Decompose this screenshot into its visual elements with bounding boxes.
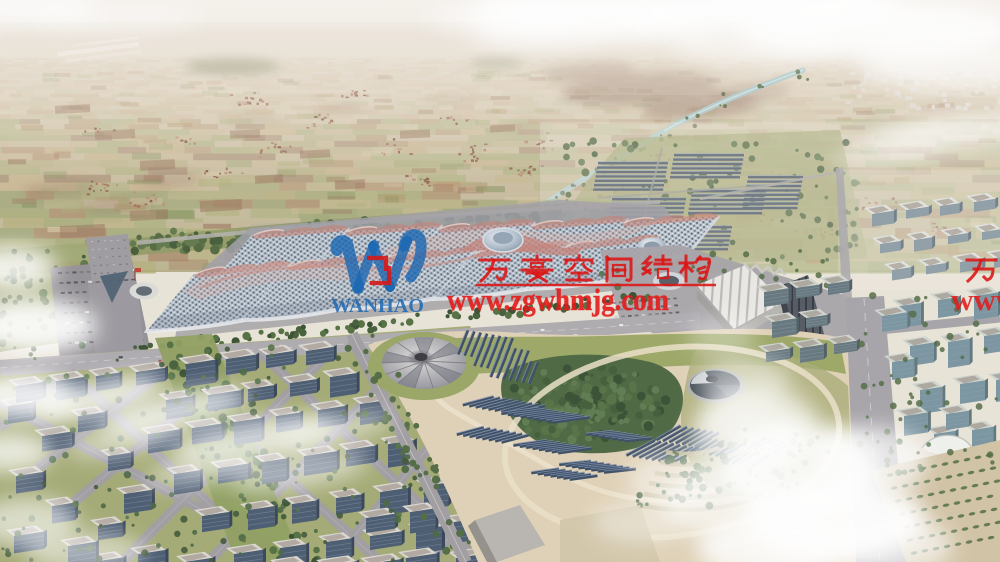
svg-text:www.z: www.z: [951, 282, 1000, 317]
svg-text:www.zgwhmjg.com: www.zgwhmjg.com: [447, 282, 669, 317]
svg-text:WANHAO: WANHAO: [331, 295, 424, 317]
